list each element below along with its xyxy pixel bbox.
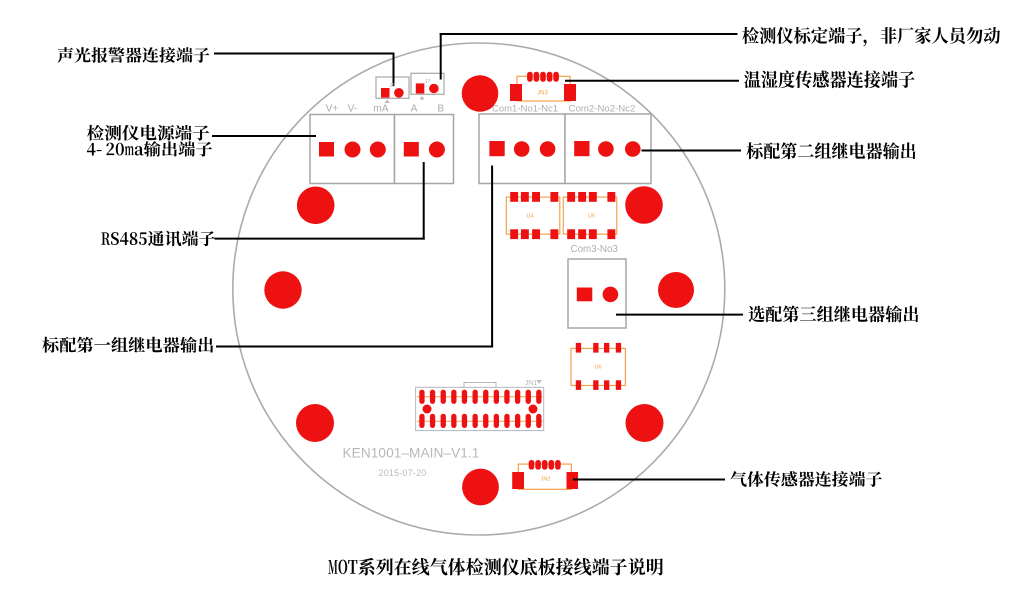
svg-text:U6: U6 — [594, 365, 601, 371]
svg-text:JN2: JN2 — [541, 477, 551, 483]
svg-text:Com2-No2-Nc2: Com2-No2-Nc2 — [569, 104, 636, 115]
svg-text:JN1: JN1 — [525, 380, 538, 387]
svg-text:V-: V- — [348, 103, 358, 114]
svg-text:Com3-No3: Com3-No3 — [571, 244, 619, 255]
svg-text:U5: U5 — [588, 214, 595, 220]
svg-text:U4: U4 — [526, 214, 533, 220]
svg-text:mA: mA — [373, 103, 388, 114]
svg-text:JN3: JN3 — [537, 91, 548, 97]
svg-text:A: A — [411, 103, 418, 114]
svg-text:2015-07-20: 2015-07-20 — [379, 468, 427, 478]
svg-text:Com1-No1-Nc1: Com1-No1-Nc1 — [492, 104, 558, 115]
svg-text:B: B — [437, 103, 444, 114]
svg-text:J7: J7 — [425, 79, 431, 85]
svg-text:V+: V+ — [326, 103, 339, 114]
svg-text:J6: J6 — [389, 83, 395, 89]
svg-text:KEN1001–MAIN–V1.1: KEN1001–MAIN–V1.1 — [343, 446, 480, 461]
